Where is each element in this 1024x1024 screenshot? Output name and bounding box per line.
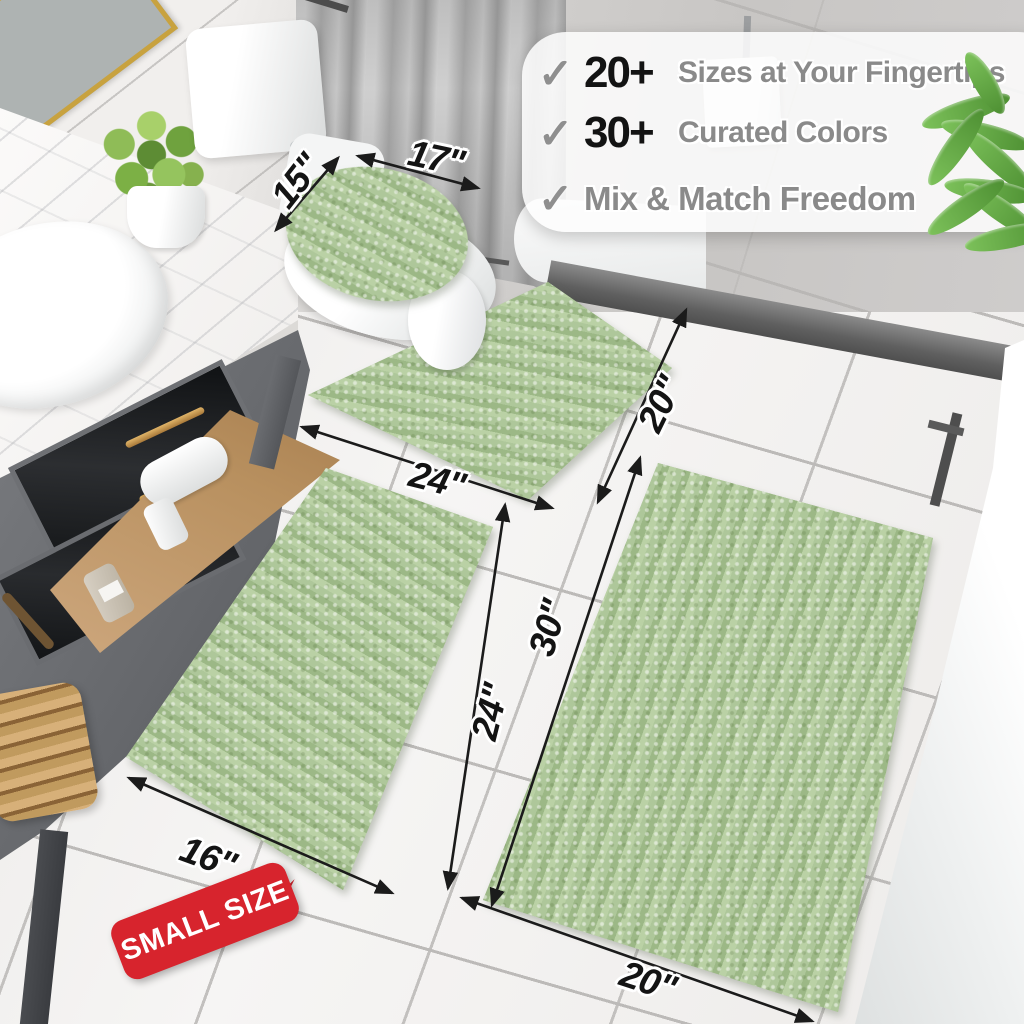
vanity-leg (20, 829, 68, 1024)
small-bath-rug (116, 458, 503, 900)
feature-row: ✓ 30+ Curated Colors (538, 108, 888, 158)
feature-value: 30+ (584, 108, 678, 158)
checkmark-icon: ✓ (538, 174, 584, 223)
corner-plant (860, 40, 1024, 250)
feature-label: Curated Colors (678, 116, 888, 150)
plant-pot (127, 186, 205, 248)
checkmark-icon: ✓ (538, 109, 584, 158)
large-bath-rug (473, 453, 943, 1022)
checkmark-icon: ✓ (538, 49, 584, 98)
feature-value: 20+ (584, 48, 678, 98)
feature-row: ✓ Mix & Match Freedom (538, 174, 916, 223)
bathroom-product-scene: 15" 17" 20" 24" 24" 16" 30" 20" ✓ 20+ Si… (0, 0, 1024, 1024)
